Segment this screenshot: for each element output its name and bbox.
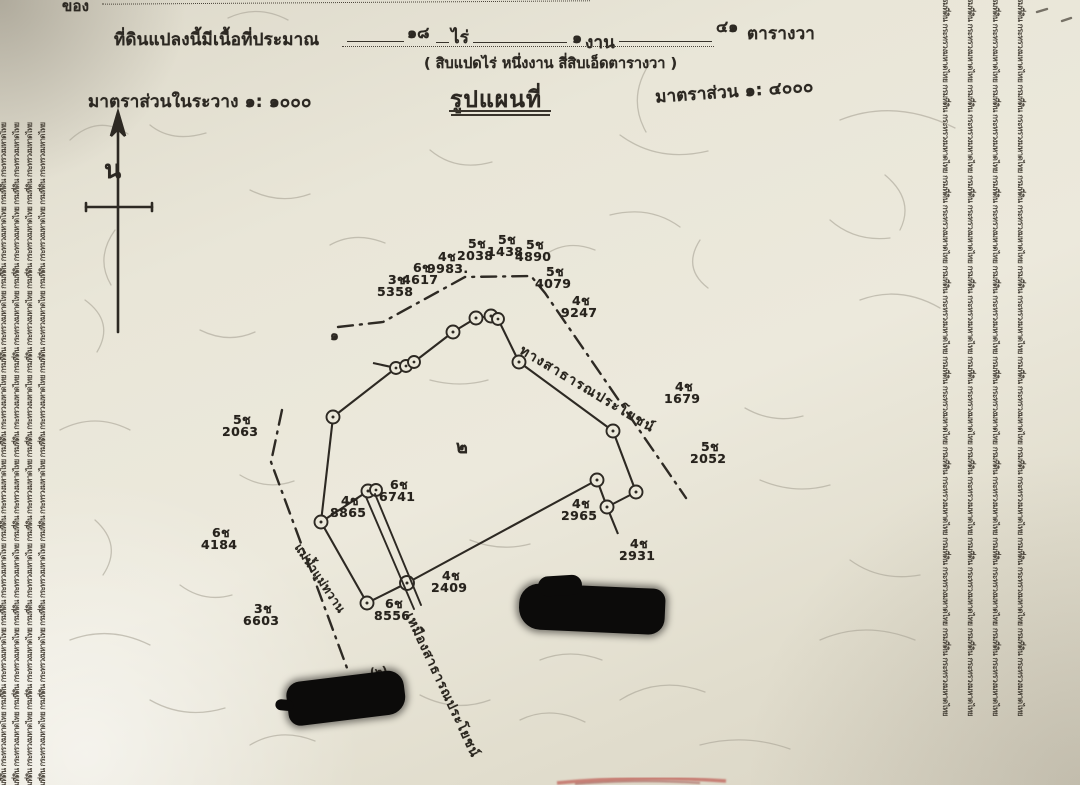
map-title: รูปแผนที่: [450, 82, 542, 118]
red-smudge: [557, 778, 726, 784]
land-deed-survey-photo: กรมที่ดิน กระทรวงมหาดไทย กรมที่ดิน กระทร…: [0, 0, 1080, 785]
boundary-marker-label: 5ช2063: [222, 414, 258, 438]
rai-value: ๑๘: [407, 21, 430, 46]
dotted-underline: [342, 46, 714, 47]
survey-marker-circles: [315, 310, 643, 610]
boundary-marker-label: 5ช4890: [515, 239, 551, 263]
boundary-marker-label: 5ช2052: [690, 441, 726, 465]
ditch-double-line: [366, 494, 421, 609]
boundary-marker-label: 4ช1679: [664, 381, 700, 405]
scale-in-sheet: มาตราส่วนในระวาง ๑: ๑๐๐๐: [88, 88, 312, 115]
boundary-marker-label: 4ช9247: [561, 295, 597, 319]
blank-line: [436, 42, 449, 43]
boundary-marker-label: 4ช2931: [619, 538, 655, 562]
adjacent-parcel-mark: ๑: [330, 325, 339, 347]
boundary-marker-label: 6ช4184: [201, 527, 237, 551]
title-underline: [449, 110, 551, 112]
boundary-marker-label: 6ช6741: [379, 479, 415, 503]
boundary-marker-label: 3ช6603: [243, 603, 279, 627]
north-arrow: [86, 112, 152, 332]
boundary-marker-label: 5ช4079: [535, 266, 571, 290]
title-underline: [451, 114, 550, 116]
blank-line: [347, 41, 404, 42]
blank-line: [473, 42, 567, 43]
wa-value: ๔๑: [716, 15, 738, 40]
boundary-marker-label: 4ช2965: [561, 498, 597, 522]
wa-unit: ตารางวา: [747, 20, 815, 47]
pencil-squiggles: [60, 11, 955, 749]
ngan-value: ๑: [572, 26, 582, 51]
area-line-prefix: ที่ดินแปลงนี้มีเนื้อที่ประมาณ: [114, 26, 319, 53]
boundary-marker-label: 4ช2409: [431, 570, 467, 594]
blank-line: [619, 41, 712, 42]
redaction-blob: [518, 583, 666, 635]
area-spelled-out: ( สิบแปดไร่ หนึ่งงาน สี่สิบเอ็ดตารางวา ): [424, 52, 677, 75]
parcel-outline: [321, 316, 636, 603]
parcel-number: ๒: [456, 432, 468, 461]
north-label: น: [104, 150, 121, 190]
corner-marks: [1037, 9, 1071, 21]
boundary-marker-label: 4ช8865: [330, 495, 366, 519]
corner-label: ของ: [62, 0, 89, 18]
